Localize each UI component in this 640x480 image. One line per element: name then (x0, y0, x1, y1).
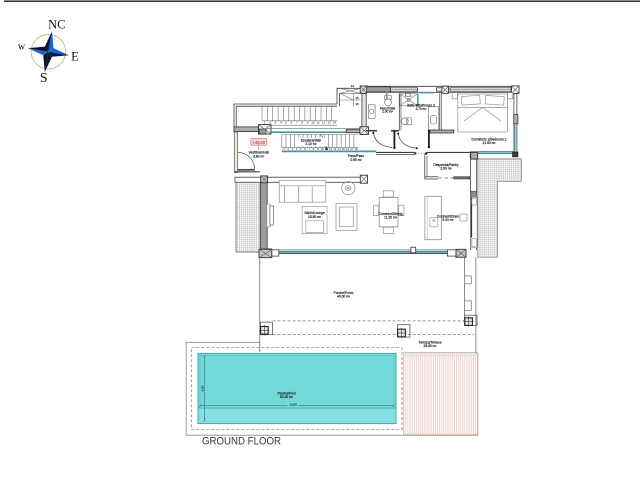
svg-text:3.10 m²: 3.10 m² (305, 142, 317, 146)
svg-text:40.00 m²: 40.00 m² (337, 294, 351, 298)
svg-text:NC: NC (48, 18, 65, 32)
svg-text:10: 10 (311, 121, 315, 125)
svg-text:3.50: 3.50 (201, 385, 205, 391)
svg-text:0.95 m²: 0.95 m² (350, 158, 362, 162)
svg-text:2.00 m²: 2.00 m² (440, 167, 452, 171)
svg-text:w: w (18, 42, 26, 53)
svg-text:26.60 m²: 26.60 m² (423, 344, 437, 348)
svg-text:14: 14 (333, 121, 337, 125)
svg-text:63.00 m²: 63.00 m² (280, 395, 294, 399)
svg-text:12: 12 (322, 121, 326, 125)
svg-text:13: 13 (327, 121, 331, 125)
svg-text:9.20 m²: 9.20 m² (442, 218, 454, 222)
svg-text:GROUND FLOOR: GROUND FLOOR (202, 435, 281, 447)
svg-text:2.00 m²: 2.00 m² (382, 110, 393, 114)
svg-text:13.00: 13.00 (289, 403, 297, 407)
svg-text:11: 11 (317, 121, 320, 125)
svg-text:3.80 m²: 3.80 m² (253, 154, 265, 158)
svg-text:E: E (71, 50, 79, 64)
svg-text:+43.00: +43.00 (252, 140, 265, 145)
svg-text:15.80 m²: 15.80 m² (308, 215, 322, 219)
svg-text:11.50 m²: 11.50 m² (384, 216, 398, 220)
svg-text:3.70 m²: 3.70 m² (416, 107, 427, 111)
svg-text:S: S (40, 71, 48, 86)
svg-text:12.60 m²: 12.60 m² (482, 141, 496, 145)
